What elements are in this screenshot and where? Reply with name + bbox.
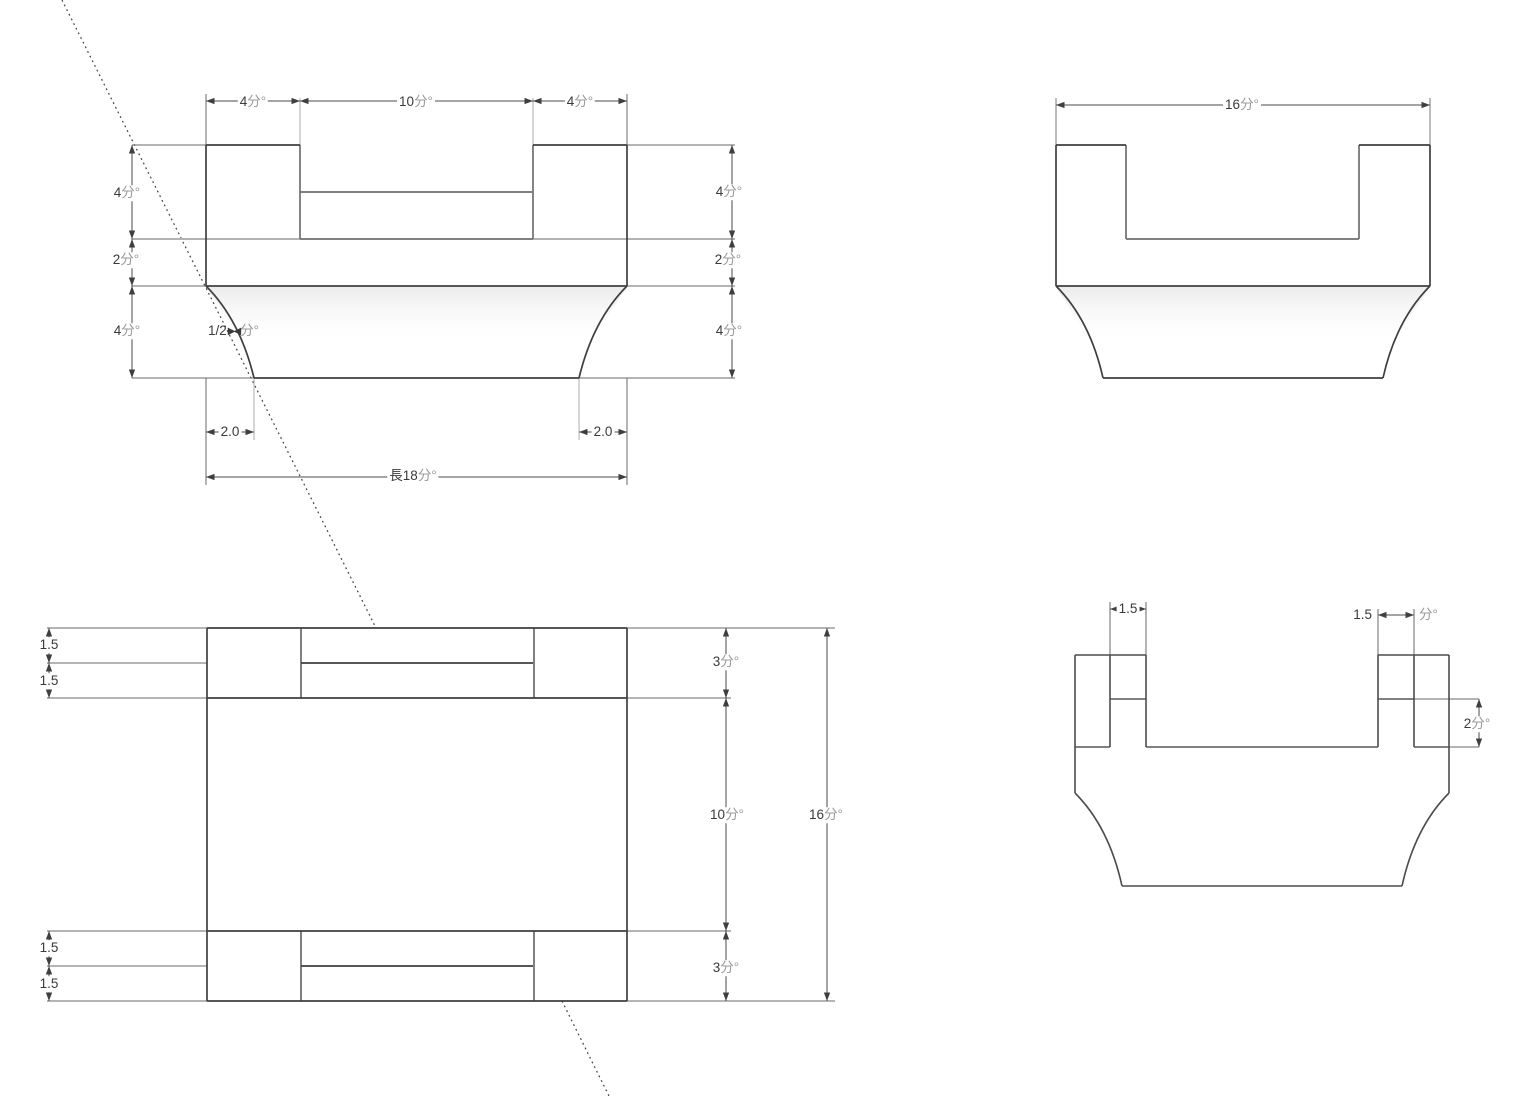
plan-dim-3b: 3分° (711, 960, 741, 976)
front-dim-top-middle: 10分° (397, 94, 435, 110)
front-radius-label: 1/2▶◀分° (206, 323, 261, 339)
plan-dim-10: 10分° (708, 807, 746, 823)
plan-dim-3a: 3分° (711, 654, 741, 670)
side-top-width-label: 16分° (1223, 97, 1261, 113)
front-dim-left-2: 2分° (111, 252, 141, 268)
side-bottom-notch-right-unit: 分° (1417, 607, 1440, 623)
side-bottom-notch-left: 1.5 (1117, 601, 1140, 617)
drawing-canvas: 4分° 10分° 4分° 4分° 2分° 4分° 4分° 2分° 4分° 1/2… (0, 0, 1534, 1096)
plan-total-height: 16分° (807, 807, 845, 823)
plan-step-4: 1.5 (38, 976, 61, 992)
front-inset-right: 2.0 (592, 424, 615, 440)
front-dim-top-right: 4分° (565, 94, 595, 110)
plan-step-1: 1.5 (38, 637, 61, 653)
front-inset-left: 2.0 (219, 424, 242, 440)
side-view-bottom (1075, 602, 1479, 886)
front-dim-right-4b: 4分° (714, 323, 744, 339)
front-dim-top-left: 4分° (238, 94, 268, 110)
cad-drawing-svg (0, 0, 1534, 1096)
bowtie-arrows-icon: ▶◀ (227, 326, 240, 337)
side-bottom-depth: 2分° (1462, 716, 1492, 732)
plan-step-2: 1.5 (38, 673, 61, 689)
front-dim-right-2: 2分° (713, 252, 743, 268)
front-dim-right-4a: 4分° (714, 184, 744, 200)
side-bottom-notch-right-value: 1.5 (1351, 607, 1374, 623)
front-dim-left-4a: 4分° (112, 185, 142, 201)
front-length-label: 長18分° (387, 468, 438, 484)
plan-step-3: 1.5 (38, 940, 61, 956)
front-dim-left-4b: 4分° (112, 323, 142, 339)
shoulder-shading (206, 287, 1430, 346)
